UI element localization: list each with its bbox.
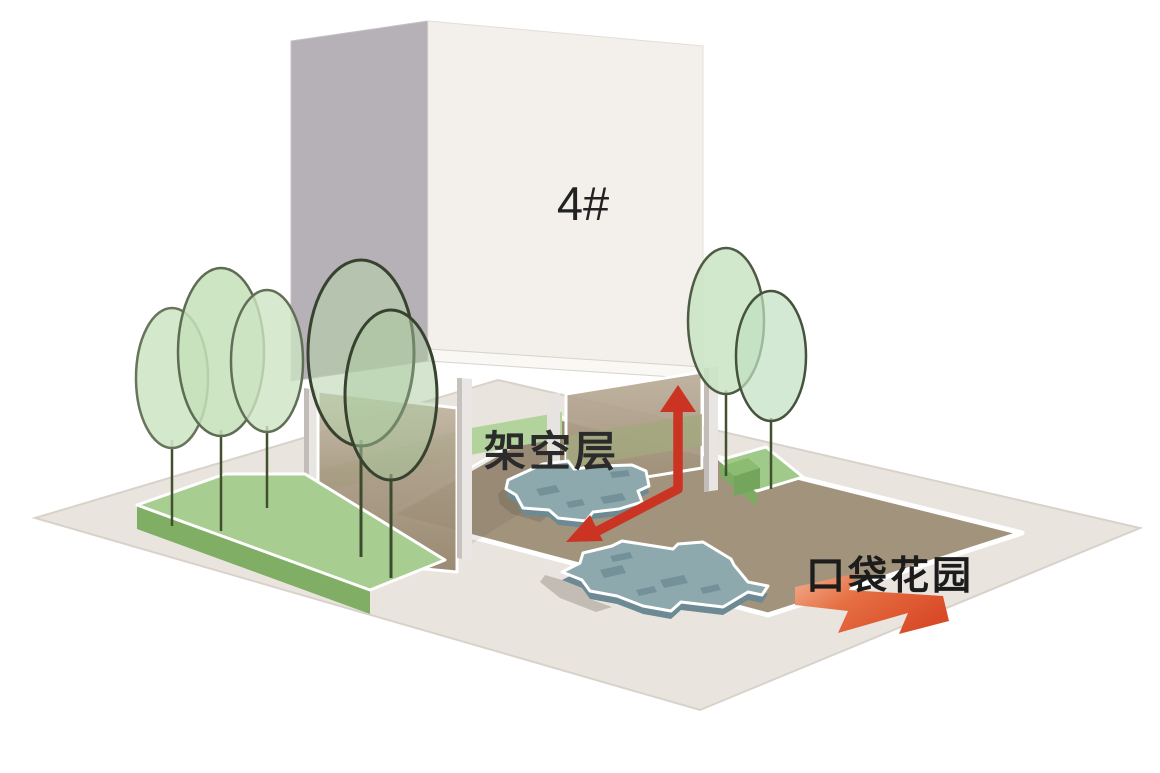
building-label: 4#	[557, 177, 609, 230]
column-left	[457, 378, 472, 560]
diagram-canvas: 4#	[0, 0, 1160, 773]
stilt-floor-label: 架空层	[484, 428, 619, 475]
pocket-garden-label: 口袋花园	[806, 555, 974, 598]
architectural-diagram: 4#	[0, 0, 1160, 773]
